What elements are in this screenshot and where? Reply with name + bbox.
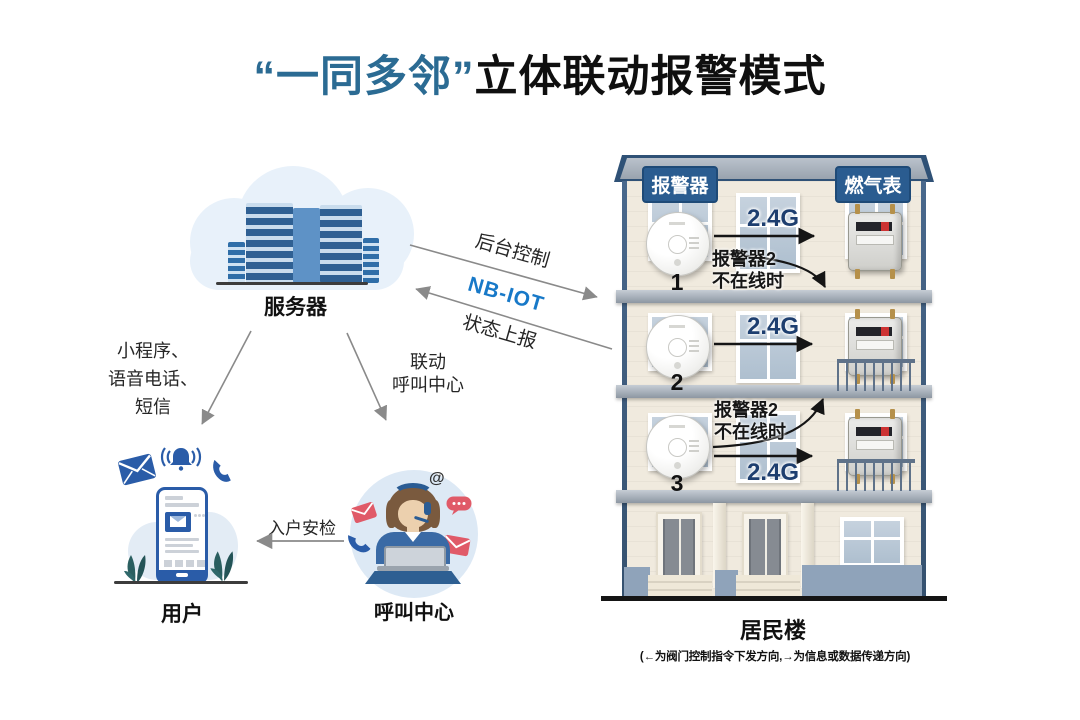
fallback-line: 不在线时 [712, 270, 784, 292]
arrow-server-to-user [202, 331, 251, 424]
g24-label: 2.4G [733, 313, 813, 341]
g24-label: 2.4G [733, 205, 813, 233]
arrow-backend-control [410, 245, 597, 297]
arrow-status-report [416, 289, 612, 349]
arrows-overlay [0, 0, 1080, 720]
fallback-line: 报警器2 [714, 399, 786, 421]
fallback-line: 不在线时 [714, 421, 786, 443]
arrow-server-to-callcenter [347, 333, 386, 420]
diagram-stage: “一同多邻”立体联动报警模式 服务器 后台控制 NB-IOT 状态上报 小程序、… [0, 0, 1080, 720]
fallback-note: 报警器2 不在线时 [714, 399, 786, 443]
fallback-note: 报警器2 不在线时 [712, 248, 784, 292]
g24-label: 2.4G [733, 459, 813, 487]
fallback-line: 报警器2 [712, 248, 784, 270]
